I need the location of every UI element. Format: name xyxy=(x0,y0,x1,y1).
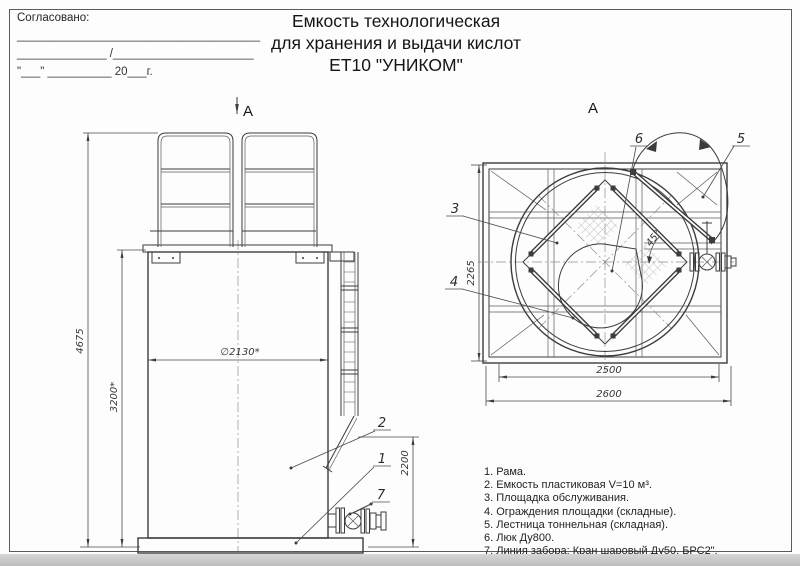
dim-diameter-label: ∅2130* xyxy=(220,347,259,358)
callout-7-label: 7 xyxy=(377,488,386,503)
front-view: А xyxy=(75,97,419,553)
parts-list-item: 1. Рама. xyxy=(484,466,784,479)
top-view: А xyxy=(445,100,750,406)
callout-5-label: 5 xyxy=(737,132,745,147)
callout-6-label: 6 xyxy=(635,132,643,147)
dim-inner-width-label: 2500 xyxy=(596,365,621,376)
platform-plate xyxy=(143,245,332,252)
dim-body-height xyxy=(117,250,146,547)
parts-list-item: 5. Лестница тоннельная (складная). xyxy=(484,519,784,532)
section-label: А xyxy=(243,103,253,120)
callout-1-label: 1 xyxy=(378,452,386,467)
dim-total-height xyxy=(80,133,158,547)
parts-list: 1. Рама. 2. Емкость пластиковая V=10 м³.… xyxy=(484,466,784,558)
parts-list-item: 6. Люк Ду800. xyxy=(484,532,784,545)
railing-panel-right xyxy=(242,133,317,247)
manhole xyxy=(558,244,642,328)
ladder-plan xyxy=(630,169,715,243)
dim-body-height-label: 3200* xyxy=(109,382,120,412)
parts-list-item: 3. Площадка обслуживания. xyxy=(484,492,784,505)
parts-list-item: 4. Ограждения площадки (складные). xyxy=(484,506,784,519)
view-label: А xyxy=(588,100,598,117)
dim-total-height-label: 4675 xyxy=(75,328,86,353)
dim-lower-height-label: 2200 xyxy=(400,450,411,475)
callout-3-label: 3 xyxy=(451,202,459,217)
callout-4-label: 4 xyxy=(450,275,458,290)
callout-5 xyxy=(702,146,751,199)
dim-depth-label: 2265 xyxy=(466,260,477,285)
scan-edge xyxy=(0,554,800,566)
dim-outer-width-label: 2600 xyxy=(596,389,621,400)
railing-panel-left xyxy=(150,133,233,247)
parts-list-item: 2. Емкость пластиковая V=10 м³. xyxy=(484,479,784,492)
ladder-swing-arc xyxy=(633,133,728,244)
base-frame-front xyxy=(138,538,363,553)
platform-pads xyxy=(152,252,354,263)
valve-front xyxy=(328,503,386,534)
callout-2-label: 2 xyxy=(378,416,386,431)
